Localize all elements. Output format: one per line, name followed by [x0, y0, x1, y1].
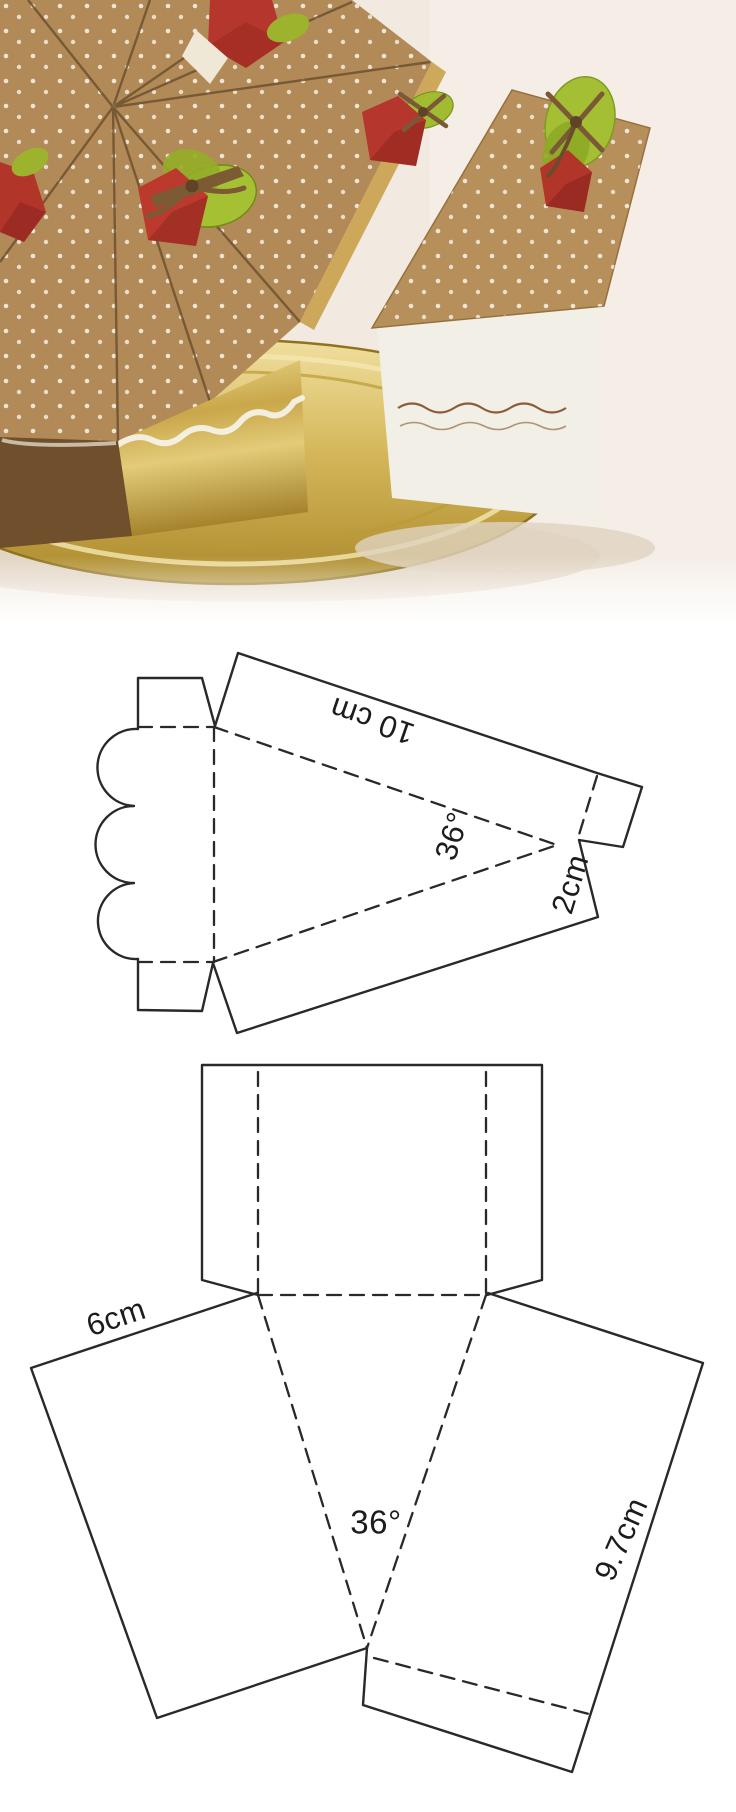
lid-side-label: 9.7cm: [587, 1492, 654, 1586]
lid-template-fold-lines: [258, 1072, 589, 1714]
lid-angle-label: 36°: [350, 1504, 401, 1541]
slice-angle-label: 36°: [428, 808, 476, 865]
lid-template-diagram: 6cm 36° 9.7cm: [31, 1065, 703, 1772]
lid-template-back-outline: [202, 1065, 542, 1295]
slice-template-fold-lines: [138, 727, 597, 962]
lid-top-label: 6cm: [82, 1291, 150, 1343]
template-diagrams: 10 cm 36° 2cm 6cm 36°: [0, 0, 736, 1812]
slice-length-label: 10 cm: [325, 690, 419, 751]
slice-template-diagram: 10 cm 36° 2cm: [96, 653, 643, 1033]
craft-pin-page: 10 cm 36° 2cm 6cm 36°: [0, 0, 736, 1812]
slice-flap-label: 2cm: [544, 850, 595, 918]
template-diagrams-svg: 10 cm 36° 2cm 6cm 36°: [0, 0, 736, 1812]
